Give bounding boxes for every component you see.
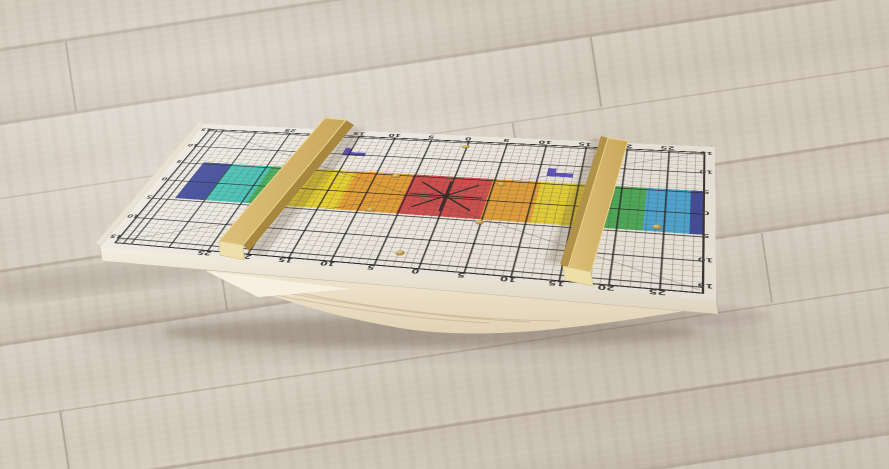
scene: 25 20 15 10 5 0 5 10 15 20 25 25 20 15 1… <box>0 0 889 469</box>
left-rail-side <box>243 120 354 251</box>
rails-layer <box>0 0 889 469</box>
